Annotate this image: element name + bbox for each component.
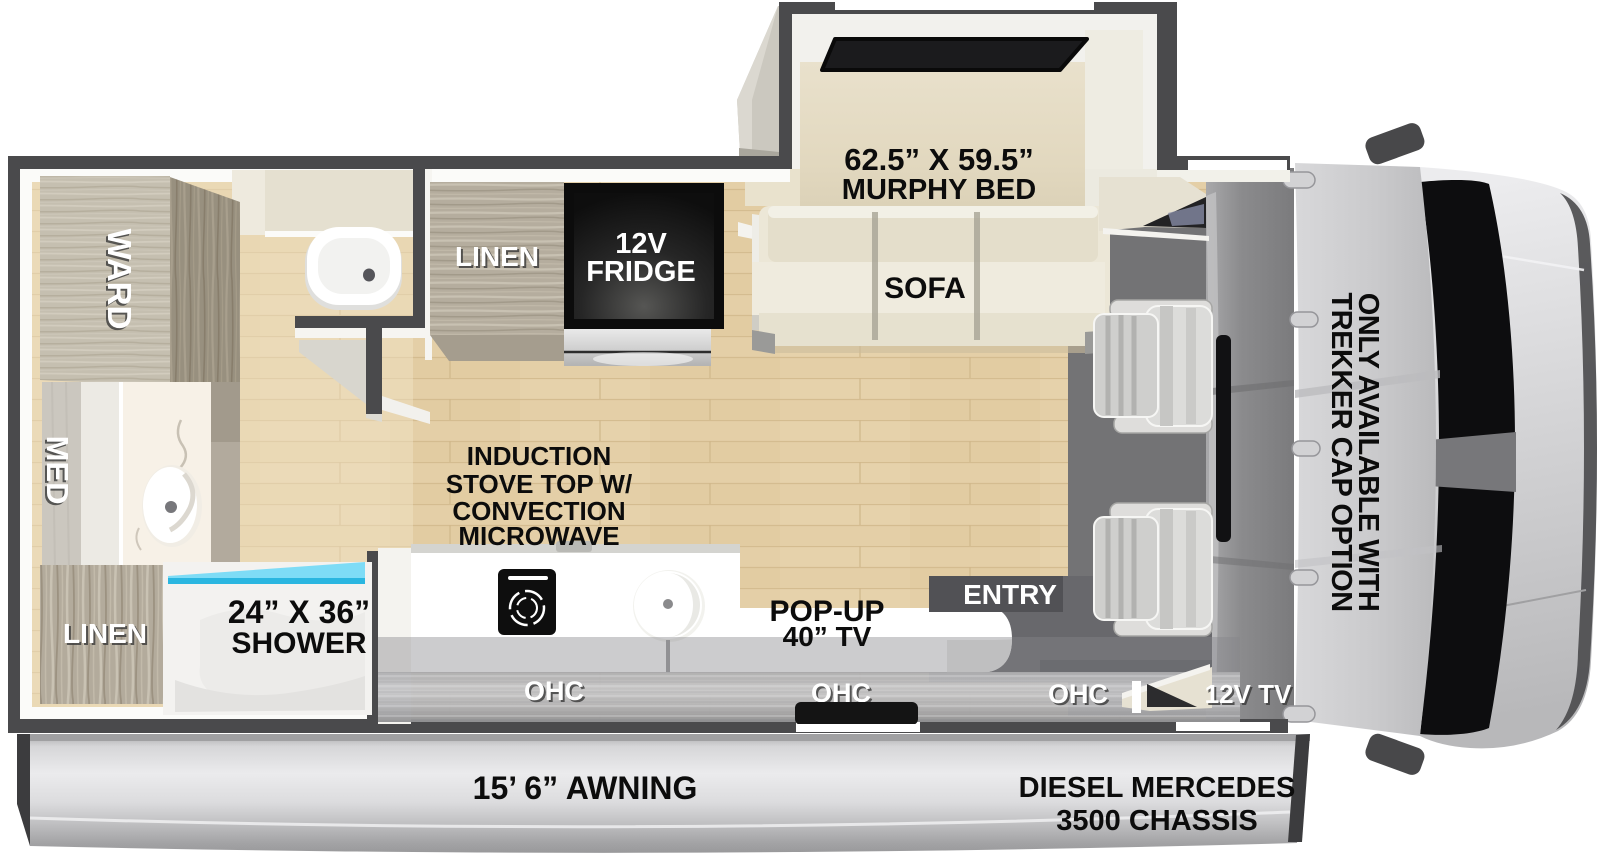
svg-text:OHC: OHC [524,676,584,706]
svg-text:LINEN: LINEN [63,618,147,649]
svg-text:MICROWAVE: MICROWAVE [458,521,619,551]
svg-text:WARD: WARD [101,229,138,330]
svg-text:DIESEL MERCEDES: DIESEL MERCEDES [1019,772,1296,804]
svg-text:LINEN: LINEN [455,241,539,272]
svg-text:12V TV: 12V TV [1205,679,1292,709]
svg-text:SOFA: SOFA [884,272,966,305]
svg-text:ENTRY: ENTRY [963,579,1057,610]
svg-text:24” X 36”: 24” X 36” [228,594,370,630]
svg-text:SHOWER: SHOWER [232,627,367,660]
svg-text:15’ 6” AWNING: 15’ 6” AWNING [473,770,698,806]
svg-text:MURPHY BED: MURPHY BED [842,174,1036,206]
svg-text:FRIDGE: FRIDGE [586,256,696,288]
svg-text:STOVE TOP W/: STOVE TOP W/ [446,469,632,499]
svg-text:MED: MED [40,436,75,505]
svg-text:3500 CHASSIS: 3500 CHASSIS [1056,805,1258,837]
svg-text:OHC: OHC [1048,679,1108,709]
svg-text:INDUCTION: INDUCTION [467,441,611,471]
svg-text:TREKKER CAP OPTION: TREKKER CAP OPTION [1325,292,1357,611]
svg-text:62.5” X 59.5”: 62.5” X 59.5” [844,142,1034,177]
svg-text:40” TV: 40” TV [783,621,872,652]
